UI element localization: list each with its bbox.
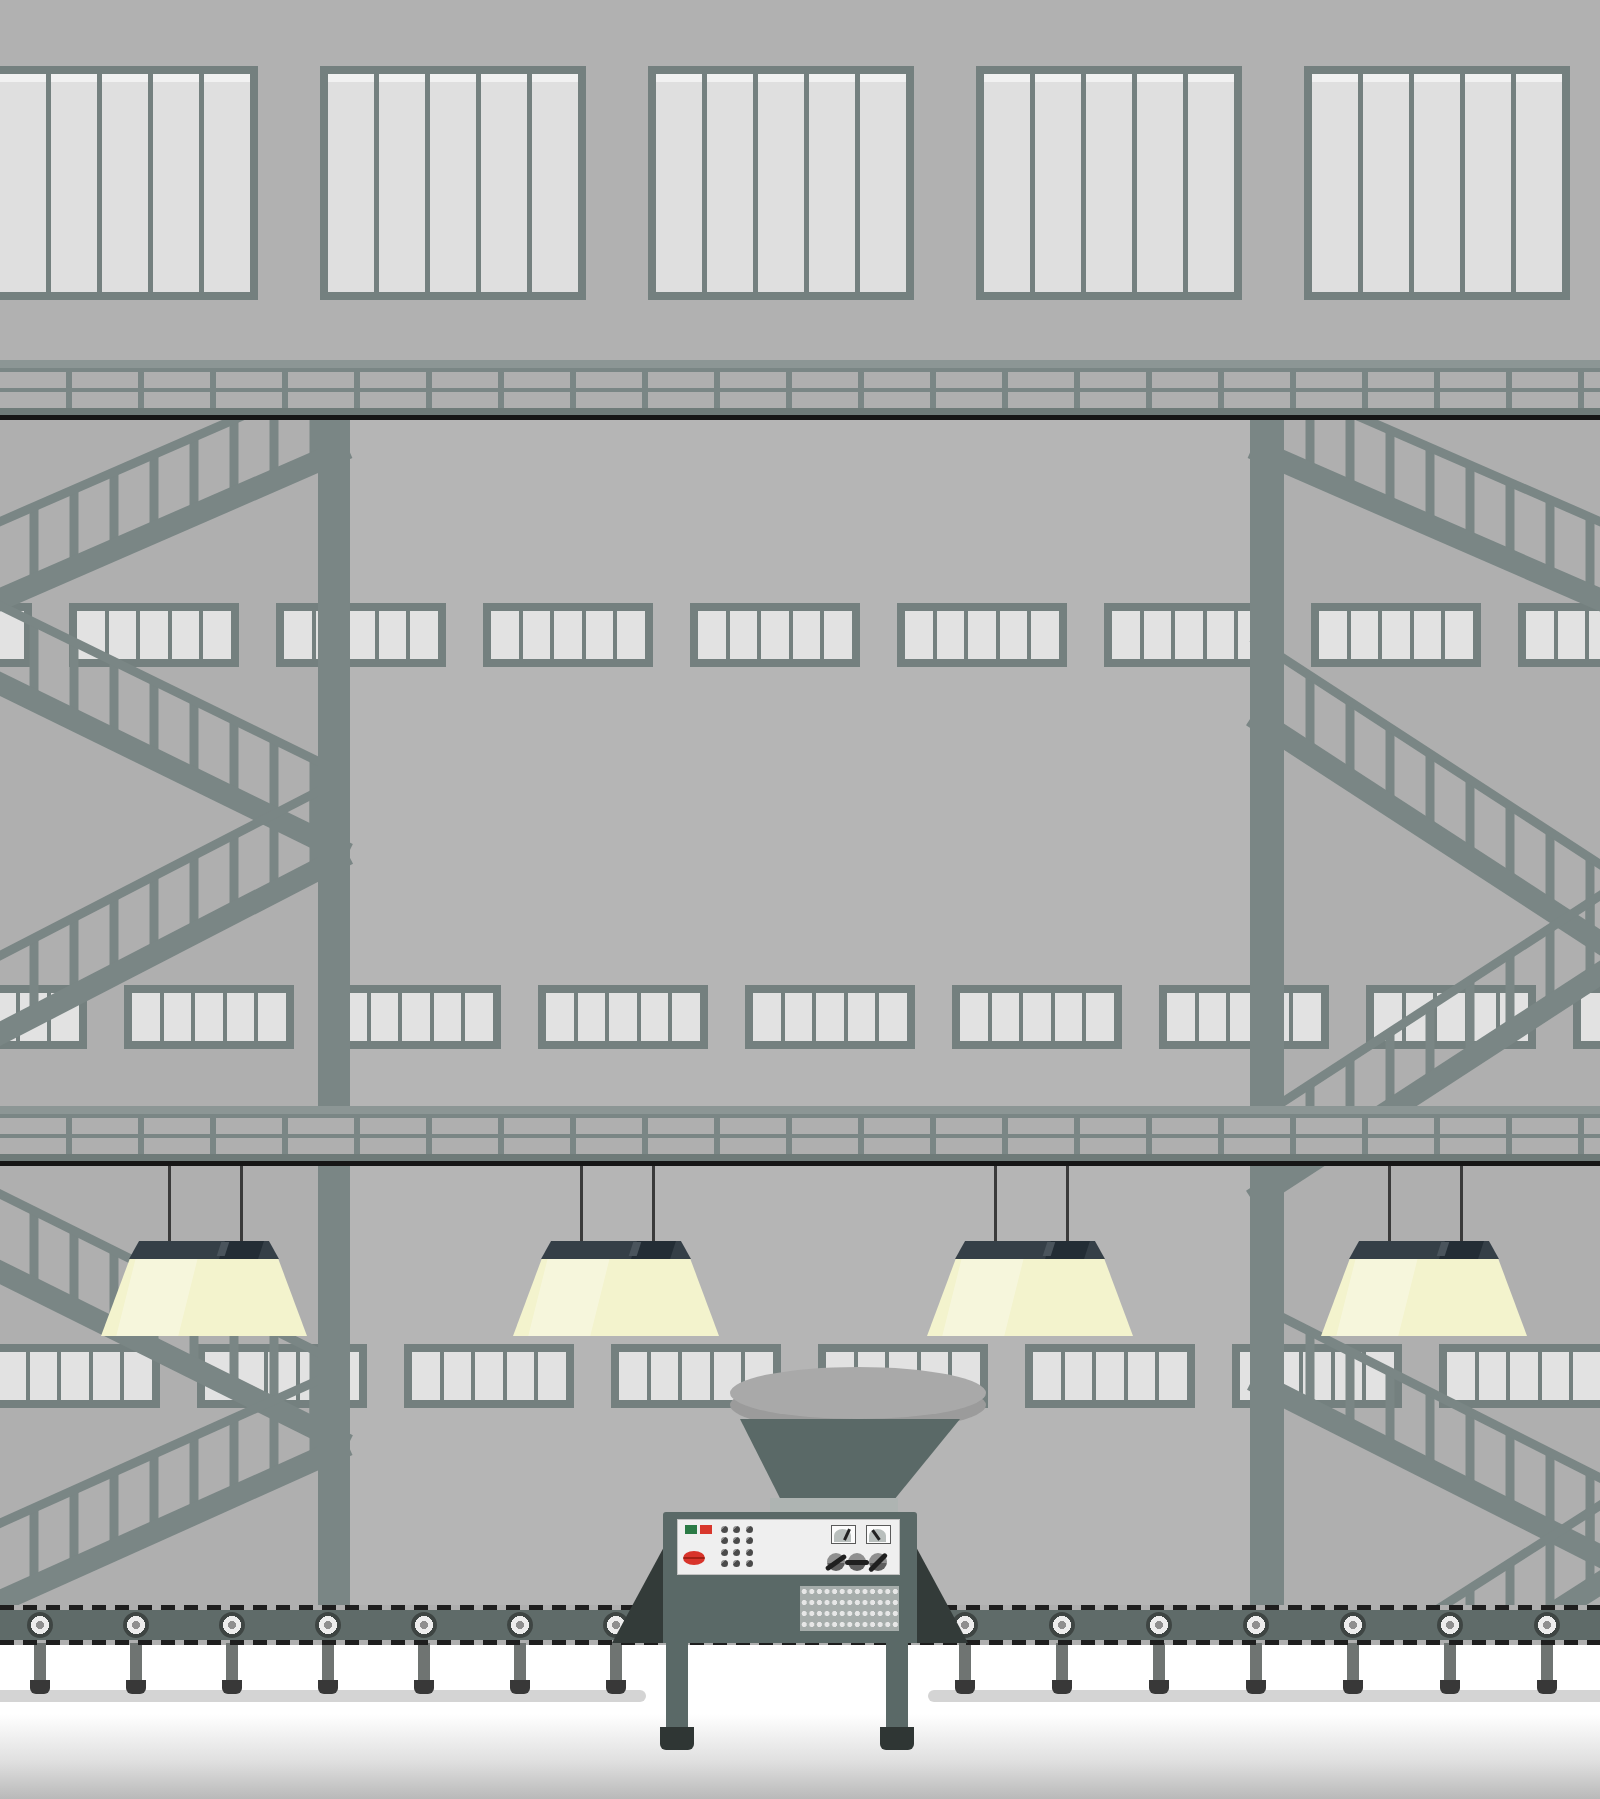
panel-knob (733, 1549, 740, 1556)
lever-knob (848, 1553, 866, 1571)
indicator-green (685, 1525, 697, 1534)
machine-foot (660, 1727, 694, 1750)
panel-knob (733, 1560, 740, 1567)
hopper-machine (0, 0, 1600, 1799)
panel-knob (733, 1537, 740, 1544)
analog-gauge (831, 1525, 856, 1544)
machine-leg (886, 1643, 908, 1732)
panel-knob (746, 1560, 753, 1567)
analog-gauge (866, 1525, 891, 1544)
machine-leg (666, 1643, 688, 1732)
machine-flank-right (915, 1545, 968, 1643)
hopper-funnel (740, 1419, 960, 1500)
machine-foot (880, 1727, 914, 1750)
panel-knob (721, 1560, 728, 1567)
panel-knob (721, 1537, 728, 1544)
factory-illustration (0, 0, 1600, 1799)
hopper-top (730, 1367, 986, 1419)
red-lens-button (683, 1551, 705, 1565)
vent-grille (800, 1586, 899, 1631)
indicator-red (700, 1525, 712, 1534)
panel-knob (721, 1549, 728, 1556)
panel-knob (746, 1526, 753, 1533)
lever-knob (827, 1553, 845, 1571)
lever-bar (845, 1560, 869, 1565)
panel-knob (746, 1537, 753, 1544)
panel-knob (733, 1526, 740, 1533)
lever-knob (869, 1553, 887, 1571)
panel-knob (721, 1526, 728, 1533)
machine-flank-left (612, 1545, 665, 1643)
panel-knob (746, 1549, 753, 1556)
